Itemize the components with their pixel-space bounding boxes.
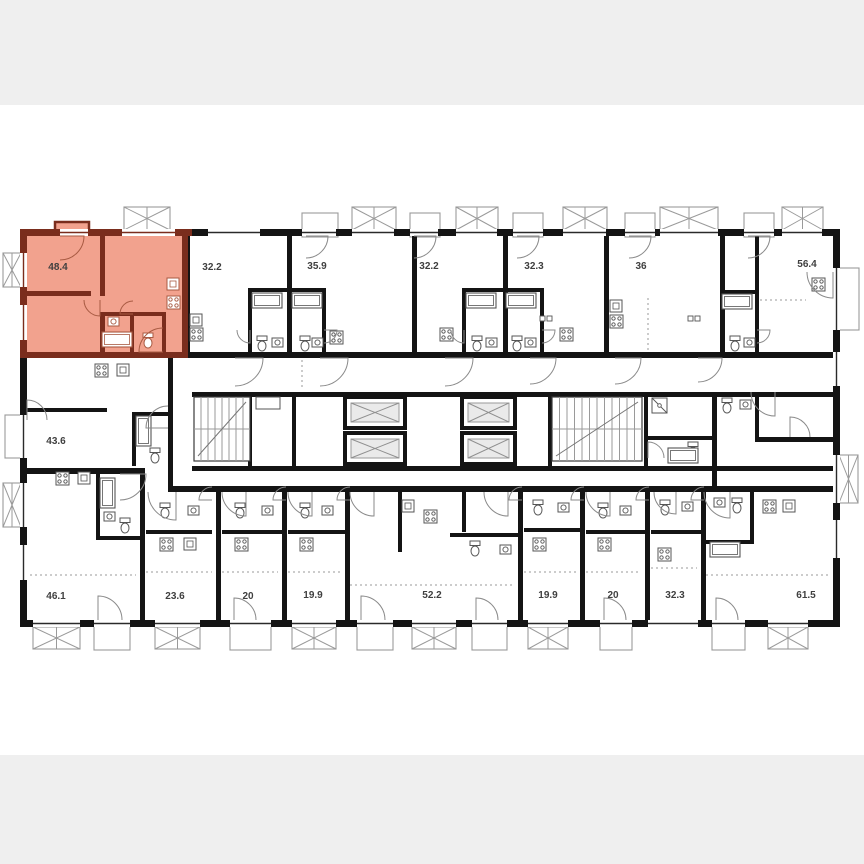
wall: [288, 530, 345, 534]
wall: [96, 536, 144, 540]
apartment-area-label: 36: [635, 261, 647, 272]
highlighted-wall: [162, 312, 166, 356]
wall: [648, 436, 712, 440]
vent-icon: [547, 316, 552, 321]
balcony-door-box: [600, 626, 632, 650]
counter-sink-icon: [117, 364, 129, 376]
toilet-icon: [160, 503, 170, 508]
sink-icon: [272, 338, 283, 347]
vent-icon: [540, 316, 545, 321]
wall: [580, 492, 585, 620]
door-swing-icon: [698, 358, 722, 382]
sink-icon: [188, 506, 199, 515]
sink-icon: [104, 512, 115, 521]
wall: [132, 412, 136, 466]
apartment-area-label: 46.1: [46, 591, 66, 602]
apartment-area-label: 23.6: [165, 591, 185, 602]
highlighted-wall: [27, 291, 91, 296]
door-swing-icon: [629, 236, 651, 258]
wall: [755, 392, 759, 441]
balcony-door-box: [839, 268, 859, 330]
wall: [96, 474, 100, 540]
wall: [168, 486, 838, 492]
wall: [192, 466, 838, 471]
toilet-icon: [599, 508, 607, 518]
wall: [222, 530, 282, 534]
wall: [712, 392, 717, 491]
balcony-door-box: [712, 626, 745, 650]
vent-icon: [695, 316, 700, 321]
toilet-icon: [722, 398, 732, 403]
toilet-icon: [688, 442, 698, 447]
sink-icon: [714, 498, 725, 507]
counter-sink-icon: [167, 278, 179, 290]
apartment-area-label: 43.6: [46, 436, 66, 447]
wall: [27, 408, 107, 412]
toilet-icon: [150, 448, 160, 453]
door-swing-icon: [648, 442, 664, 458]
toilet-icon: [512, 336, 522, 341]
sink-icon: [312, 338, 323, 347]
wall: [701, 492, 706, 620]
sink-icon: [108, 317, 119, 326]
apartment-area-label: 48.4: [48, 262, 68, 273]
toilet-icon: [301, 508, 309, 518]
toilet-icon: [660, 500, 670, 505]
wall: [524, 528, 580, 532]
apartment-area-label: 52.2: [422, 590, 442, 601]
apartment-area-label: 32.3: [665, 590, 685, 601]
door-swing-icon: [361, 596, 385, 620]
wall: [462, 492, 466, 532]
wall: [287, 236, 292, 354]
door-swing-icon: [98, 596, 122, 620]
apartment-area-label: 32.2: [419, 261, 439, 272]
balcony-door-box: [472, 626, 507, 650]
toilet-icon: [730, 336, 740, 341]
stove-icon: [598, 538, 611, 551]
door-swing-icon: [235, 358, 263, 386]
toilet-icon: [731, 341, 739, 351]
wall: [292, 392, 296, 471]
counter-sink-icon: [783, 500, 795, 512]
door-swing-icon: [615, 358, 641, 384]
balcony-door-box: [230, 626, 271, 650]
sink-icon: [500, 545, 511, 554]
wall: [345, 492, 350, 620]
door-swing-icon: [306, 236, 328, 258]
toilet-icon: [257, 336, 267, 341]
wall: [720, 290, 759, 294]
sink-icon: [322, 506, 333, 515]
apartment-area-label: 19.9: [303, 590, 323, 601]
toilet-icon: [258, 341, 266, 351]
stove-icon: [658, 548, 671, 561]
plan-geometry: [3, 207, 859, 650]
sink-icon: [525, 338, 536, 347]
toilet-icon: [301, 341, 309, 351]
garbage-chute: [256, 397, 280, 409]
door-swing-icon: [414, 236, 436, 258]
wall: [644, 392, 648, 471]
toilet-icon: [471, 546, 479, 556]
counter-sink-icon: [402, 500, 414, 512]
wall: [651, 530, 701, 534]
toilet-icon: [300, 503, 310, 508]
sink-icon: [682, 502, 693, 511]
door-swing-icon: [604, 598, 626, 620]
toilet-icon: [661, 505, 669, 515]
stove-icon: [610, 315, 623, 328]
apartment-area-label: 19.9: [538, 590, 558, 601]
wall: [140, 468, 145, 620]
wall: [755, 437, 833, 442]
stove-icon: [160, 538, 173, 551]
wall: [645, 492, 650, 620]
floor-plan-image: 48.4 32.2 35.9 32.2 32.3 36 56.4 43.6 46…: [0, 0, 864, 864]
sink-icon: [558, 503, 569, 512]
stove-icon: [235, 538, 248, 551]
stove-icon: [533, 538, 546, 551]
stove-icon: [424, 510, 437, 523]
highlighted-wall: [182, 236, 188, 358]
door-swing-icon: [484, 492, 508, 516]
toilet-icon: [235, 503, 245, 508]
toilet-icon: [732, 498, 742, 503]
stove-icon: [763, 500, 776, 513]
apartment-area-label: 32.2: [202, 262, 222, 273]
door-swing-icon: [445, 358, 473, 386]
balcony-door-box: [94, 626, 130, 650]
wall: [292, 288, 326, 292]
shower-icon: [658, 404, 662, 408]
stove-icon: [95, 364, 108, 377]
wall: [755, 236, 759, 290]
wall: [248, 288, 290, 292]
building-floor-plan: 48.4 32.2 35.9 32.2 32.3 36 56.4 43.6 46…: [0, 0, 864, 864]
door-swing-icon: [517, 236, 539, 258]
balcony-door-box: [357, 626, 393, 650]
wall: [604, 236, 609, 354]
stove-icon: [440, 328, 453, 341]
toilet-icon: [144, 338, 152, 348]
sink-icon: [486, 338, 497, 347]
toilet-icon: [121, 523, 129, 533]
wall: [750, 492, 754, 544]
toilet-icon: [513, 341, 521, 351]
stove-icon: [167, 296, 180, 309]
sink-icon: [744, 338, 755, 347]
wall: [398, 492, 402, 552]
counter-sink-icon: [190, 314, 202, 326]
stove-icon: [300, 538, 313, 551]
sink-icon: [620, 506, 631, 515]
toilet-icon: [470, 541, 480, 546]
wall: [282, 492, 287, 620]
wall: [462, 288, 507, 292]
toilet-icon: [473, 341, 481, 351]
door-swing-icon: [476, 598, 498, 620]
wall: [216, 492, 221, 620]
toilet-icon: [300, 336, 310, 341]
door-swing-icon: [320, 358, 348, 386]
door-swing-icon: [716, 598, 738, 620]
balcony-door-box: [5, 415, 21, 458]
stove-icon: [560, 328, 573, 341]
sink-icon: [262, 506, 273, 515]
counter-sink-icon: [184, 538, 196, 550]
toilet-icon: [472, 336, 482, 341]
sink-icon: [740, 400, 751, 409]
stove-icon: [56, 472, 69, 485]
door-swing-icon: [530, 358, 556, 384]
highlighted-wall: [100, 236, 105, 296]
toilet-icon: [733, 503, 741, 513]
apartment-area-label: 32.3: [524, 261, 544, 272]
counter-sink-icon: [610, 300, 622, 312]
toilet-icon: [120, 518, 130, 523]
wall: [168, 358, 173, 486]
apartment-area-label: 35.9: [307, 261, 327, 272]
wall: [586, 530, 645, 534]
door-swing-icon: [350, 492, 374, 516]
toilet-icon: [533, 500, 543, 505]
apartment-area-label: 20: [242, 591, 254, 602]
counter-sink-icon: [78, 472, 90, 484]
apartment-area-label: 20: [607, 590, 619, 601]
toilet-icon: [151, 453, 159, 463]
door-swing-icon: [790, 417, 810, 437]
wall: [503, 288, 544, 292]
toilet-icon: [598, 503, 608, 508]
vent-icon: [688, 316, 693, 321]
toilet-icon: [534, 505, 542, 515]
stove-icon: [190, 328, 203, 341]
toilet-icon: [723, 403, 731, 413]
apartment-area-label: 61.5: [796, 590, 816, 601]
wall: [518, 492, 523, 620]
wall: [146, 530, 212, 534]
wall: [412, 236, 417, 354]
toilet-icon: [236, 508, 244, 518]
wall: [450, 533, 518, 537]
apartment-area-label: 56.4: [797, 259, 817, 270]
